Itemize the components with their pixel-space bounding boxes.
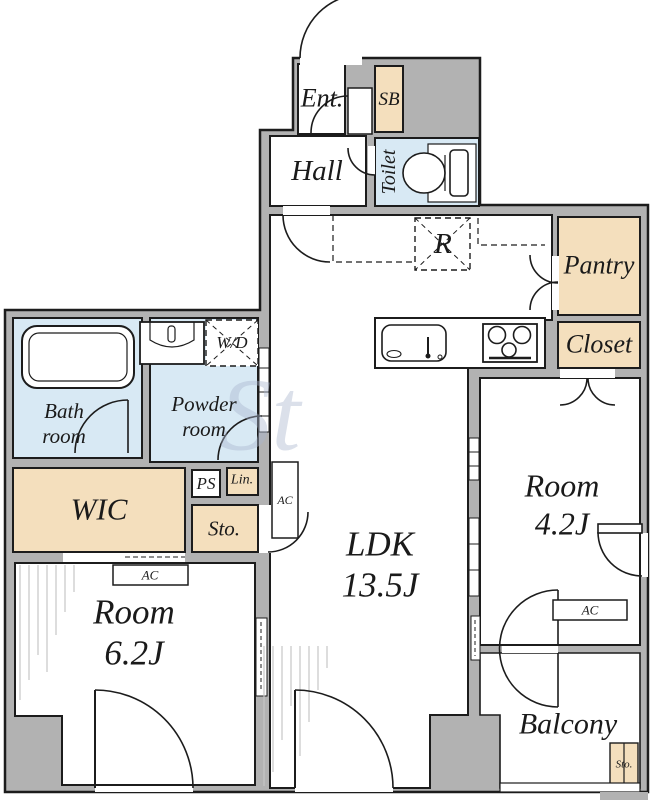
label-hall: Hall (291, 154, 343, 188)
label-storage: Sto. (208, 517, 240, 542)
label-ac-room62: AC (142, 567, 159, 582)
label-balcony-storage: Sto. (616, 759, 633, 772)
label-entrance: Ent. (301, 84, 344, 115)
label-shoe-box: SB (378, 89, 399, 111)
label-room-6-2j: Room 6.2J (93, 592, 175, 675)
floor-plan-drawing (0, 0, 650, 800)
label-pipe-space: PS (197, 474, 216, 494)
label-ac-room42: AC (582, 602, 599, 617)
label-refrigerator: R (434, 227, 452, 261)
label-linen: Lin. (231, 473, 253, 490)
label-pantry: Pantry (564, 251, 635, 282)
label-bath: Bath room (42, 399, 86, 449)
faucet (168, 326, 175, 342)
label-toilet: Toilet (378, 150, 402, 195)
floor-plan: St Ent. SB Hall Toilet Pantry Closet Bat… (0, 0, 650, 800)
label-ac-ldk: AC (277, 493, 292, 507)
label-ldk: LDK 13.5J (342, 524, 419, 607)
front-door-arc (300, 0, 364, 58)
entrance-step (348, 88, 372, 134)
label-wic: WIC (71, 492, 128, 529)
label-closet: Closet (566, 330, 632, 361)
label-room-4-2j: Room 4.2J (525, 467, 600, 543)
toilet-fixture (403, 150, 468, 196)
stove (483, 324, 537, 362)
label-washer-dryer: W/D (216, 333, 247, 353)
balcony-rail (500, 783, 640, 792)
bathtub (22, 326, 134, 388)
label-powder: Powder room (171, 392, 236, 442)
label-balcony: Balcony (519, 706, 617, 741)
